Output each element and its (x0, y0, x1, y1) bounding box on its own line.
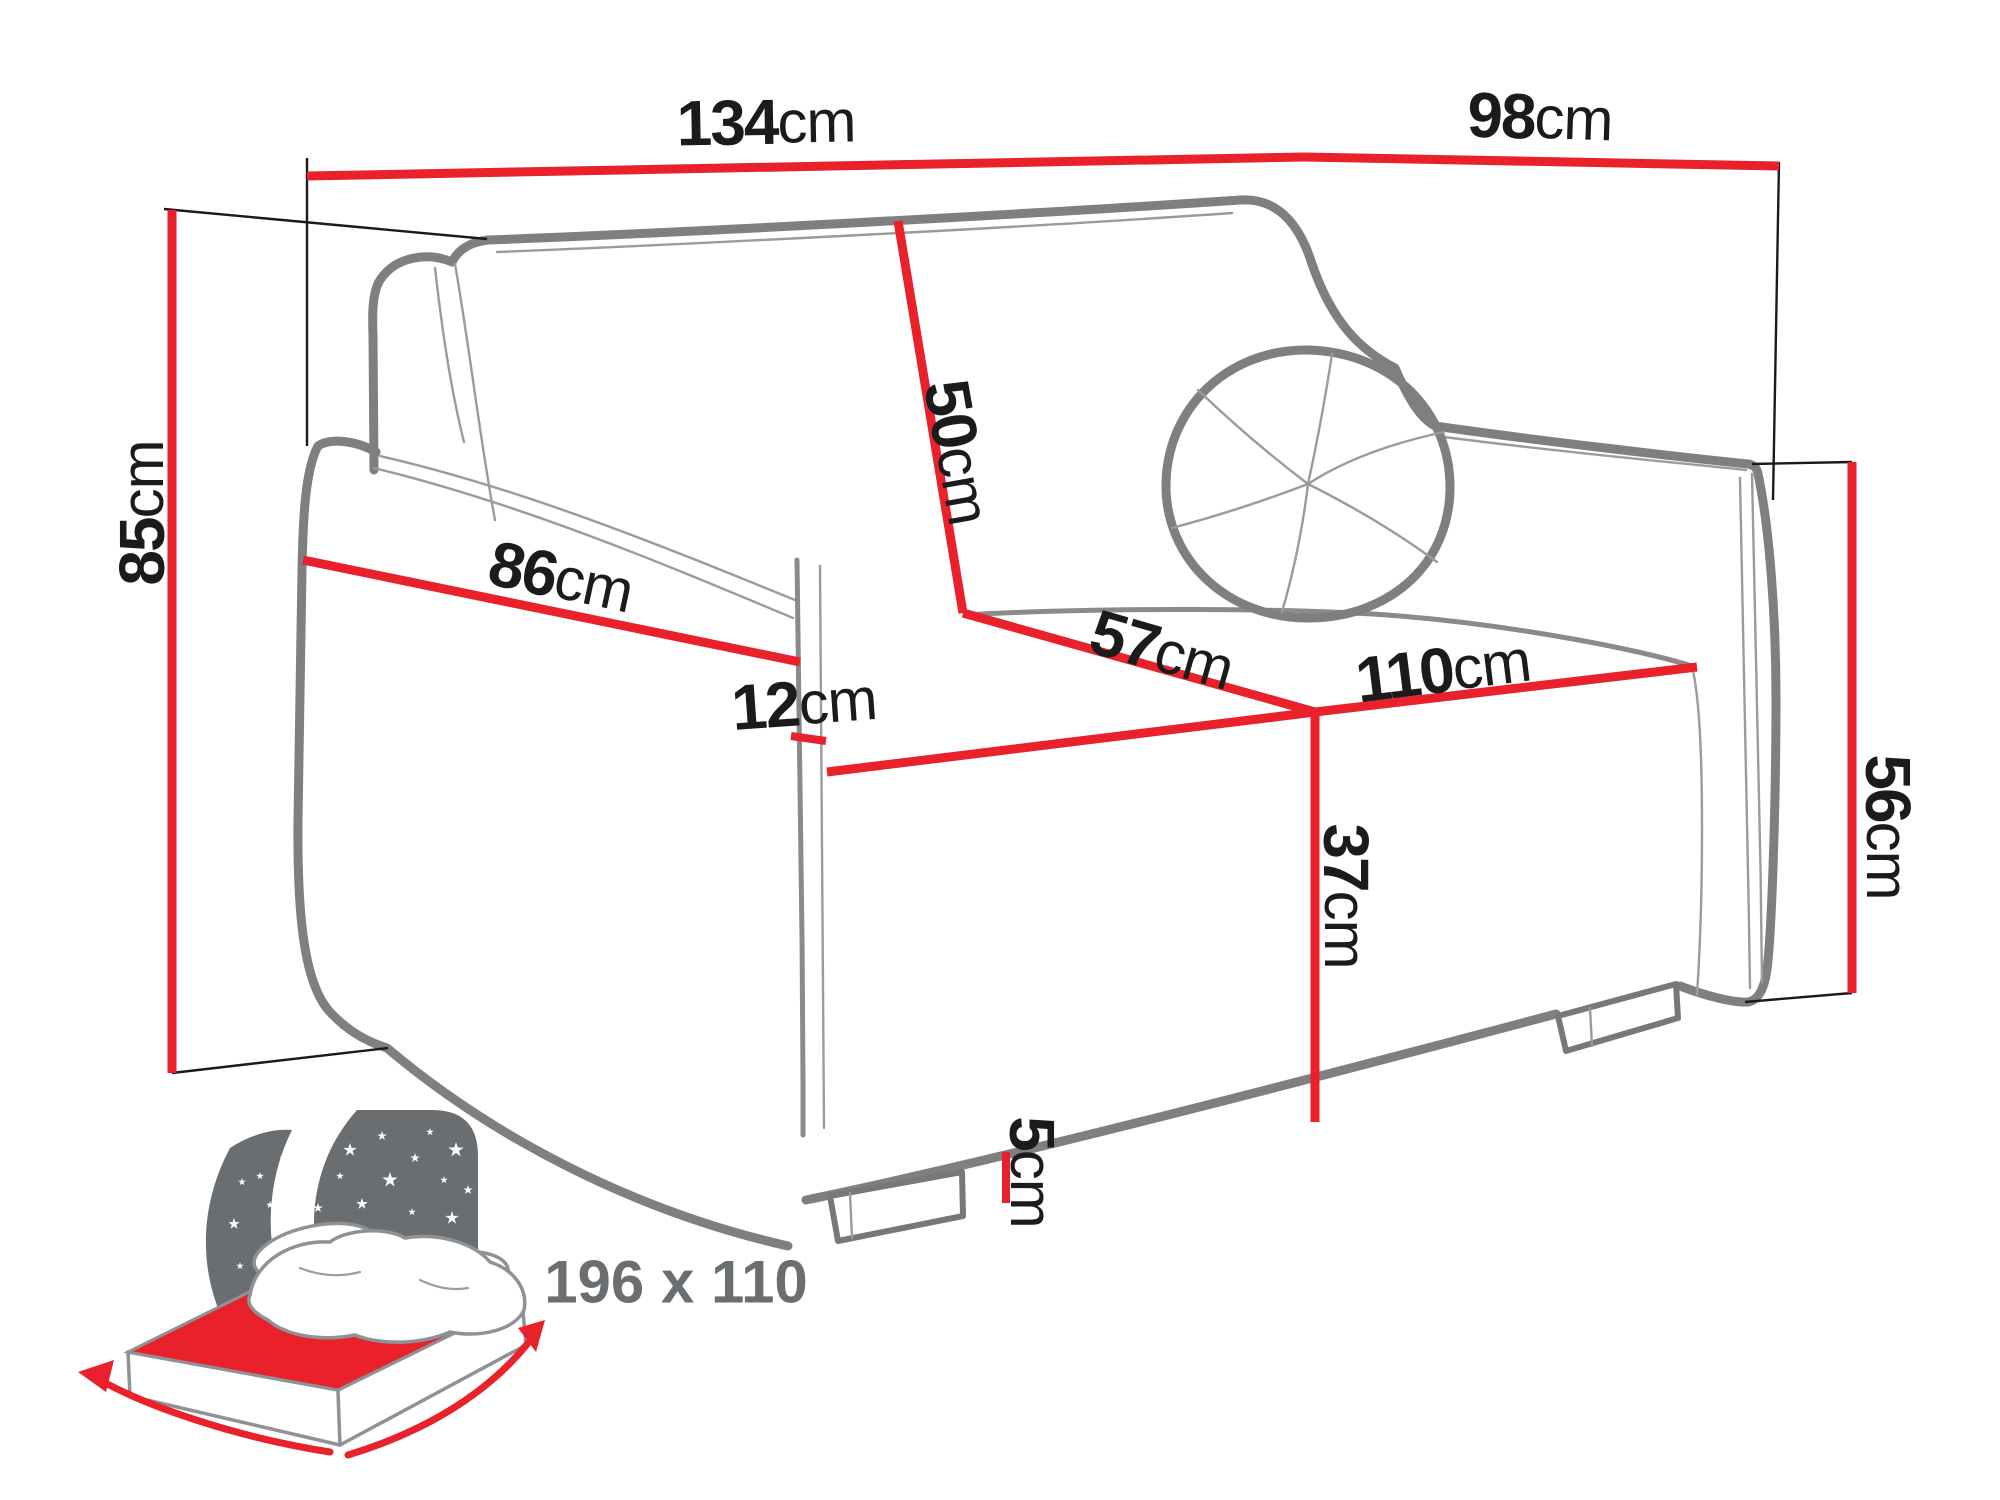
sofa-dimension-diagram: 134cm 98cm 85cm 50cm 86cm 12cm 57cm 110c… (0, 0, 2000, 1500)
label-armrest-height: 56cm (1852, 754, 1924, 899)
dimension-lines (172, 157, 1852, 1203)
label-seat-width: 110cm (1352, 624, 1535, 717)
sofa-bottom-front (806, 1014, 1556, 1200)
label-armrest-width: 12cm (729, 662, 879, 744)
dim-line-total-width (307, 157, 1304, 176)
sofa-left-armrest-front-edge (797, 560, 803, 1135)
sofa-right-armrest-trim (1437, 436, 1746, 470)
duvet (249, 1231, 525, 1342)
sofa-backrest-corner-left (452, 240, 488, 262)
sofa-illustration (298, 200, 1776, 1246)
ext-top-left-horizontal (164, 209, 487, 239)
sofa-backrest-top (488, 200, 1395, 368)
sofa-right-armrest-inner-seam-2 (1752, 474, 1762, 982)
label-total-depth: 98cm (1466, 78, 1614, 155)
diagram-canvas: 134cm 98cm 85cm 50cm 86cm 12cm 57cm 110c… (0, 0, 2000, 1500)
sleeping-area-icon: 196 x 110 (78, 1110, 808, 1455)
sleeping-area-size-label: 196 x 110 (544, 1249, 808, 1316)
ext-bottom-left (172, 1048, 388, 1073)
ext-armrest-top-right (1752, 462, 1852, 464)
label-backrest-height: 50cm (910, 374, 1006, 529)
ext-back-right-vertical (1773, 162, 1779, 500)
label-total-height: 85cm (106, 440, 178, 585)
sofa-bottom-right-corner (1680, 960, 1768, 1002)
bedding (249, 1214, 525, 1342)
dim-line-seat-front-edge (827, 712, 1315, 772)
sofa-right-armrest-inner-seam-1 (1740, 478, 1750, 988)
sofa-left-armrest-front-seam (820, 566, 824, 1128)
extension-lines (164, 158, 1852, 1073)
sofa-seat-right-corner-edge (1692, 666, 1702, 995)
label-seat-height: 37cm (1310, 823, 1382, 968)
rear-right-leg (1558, 984, 1678, 1051)
dim-line-total-depth (1304, 157, 1779, 166)
mattress (78, 1214, 545, 1455)
sofa-left-armrest-outer (298, 441, 387, 1048)
label-total-width: 134cm (676, 84, 856, 159)
label-leg-height: 5cm (996, 1116, 1068, 1228)
sofa-back-layer (373, 257, 452, 470)
sofa-legs (830, 984, 1678, 1241)
